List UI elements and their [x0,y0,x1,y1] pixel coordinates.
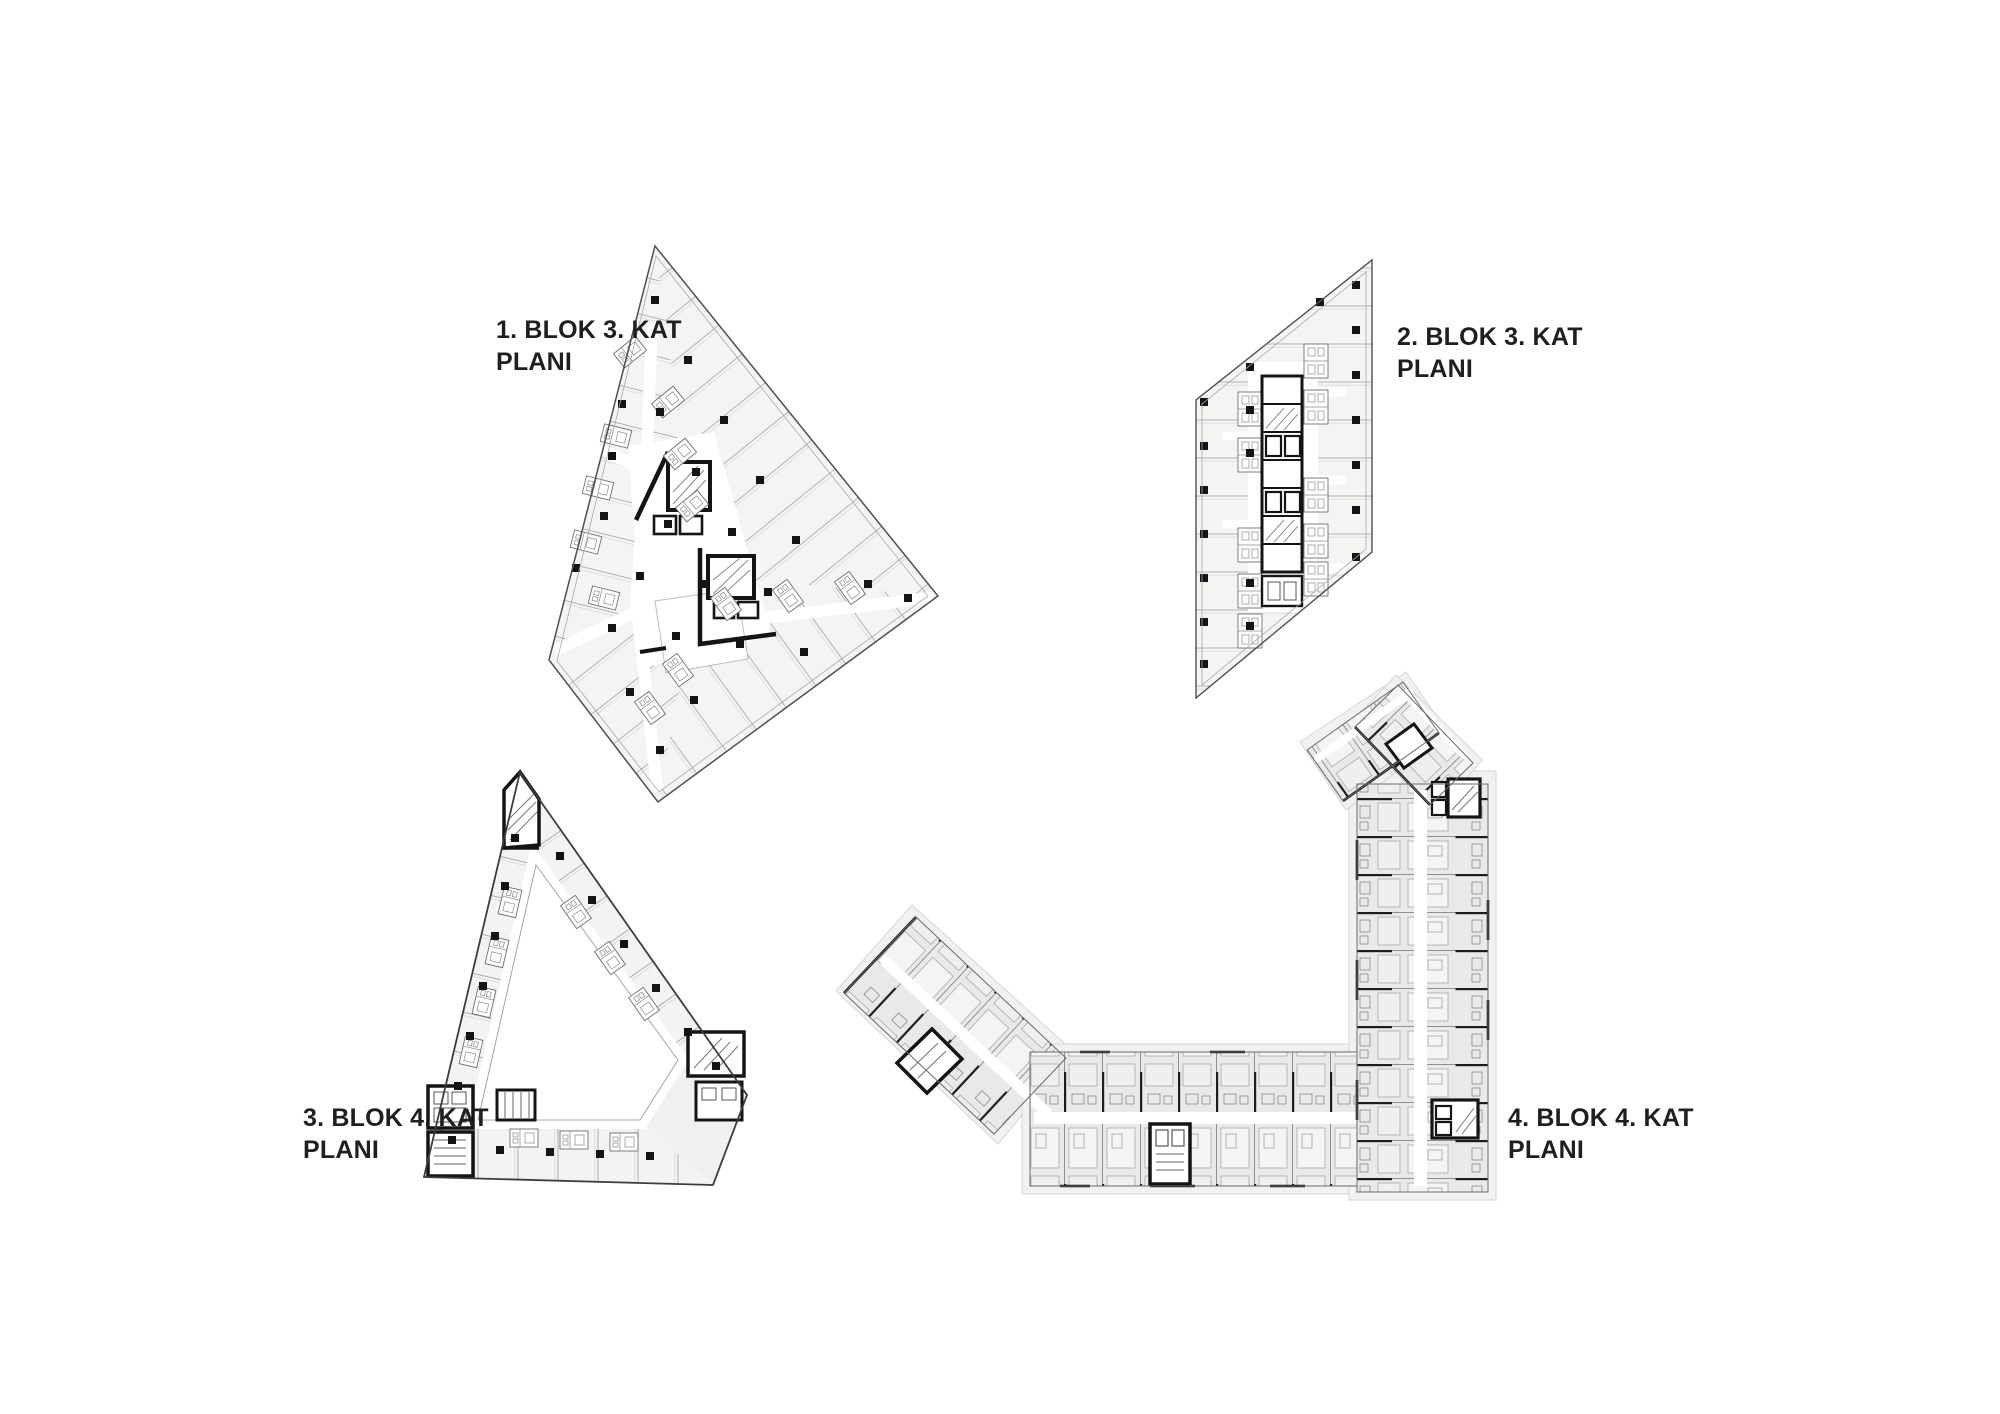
plan-3-label-line1: 3. BLOK 4. KAT [303,1102,489,1134]
plan-4-label: 4. BLOK 4. KAT PLANI [1508,1102,1694,1166]
plan-2-label-line1: 2. BLOK 3. KAT [1397,321,1583,353]
plan-3-core-inner [497,1090,535,1120]
plan-4-label-line2: PLANI [1508,1134,1694,1166]
drawing-sheet: 1. BLOK 3. KAT PLANI 2. BLOK 3. KAT PLAN… [0,0,2000,1414]
plan-4-label-line1: 4. BLOK 4. KAT [1508,1102,1694,1134]
plan-3-stair-core-apex [504,772,539,848]
plan-1-label-line2: PLANI [496,346,682,378]
plan-4-core-bottom-right [1432,1100,1478,1138]
plan-2-label-line2: PLANI [1397,353,1583,385]
plan-4-core-top-right [1432,779,1480,817]
plan-4-core-bottom-wing [1150,1124,1190,1184]
plan-3-label-line2: PLANI [303,1134,489,1166]
floor-plans-canvas [0,0,2000,1414]
plan-2-label: 2. BLOK 3. KAT PLANI [1397,321,1583,385]
plan-2-stair-elevator-core [1262,376,1302,606]
plan-3-core-right [688,1032,744,1120]
plan-1-label-line1: 1. BLOK 3. KAT [496,314,682,346]
plan-1-label: 1. BLOK 3. KAT PLANI [496,314,682,378]
floor-plan-4 [836,672,1496,1200]
floor-plan-2 [1196,260,1372,698]
plan-3-label: 3. BLOK 4. KAT PLANI [303,1102,489,1166]
